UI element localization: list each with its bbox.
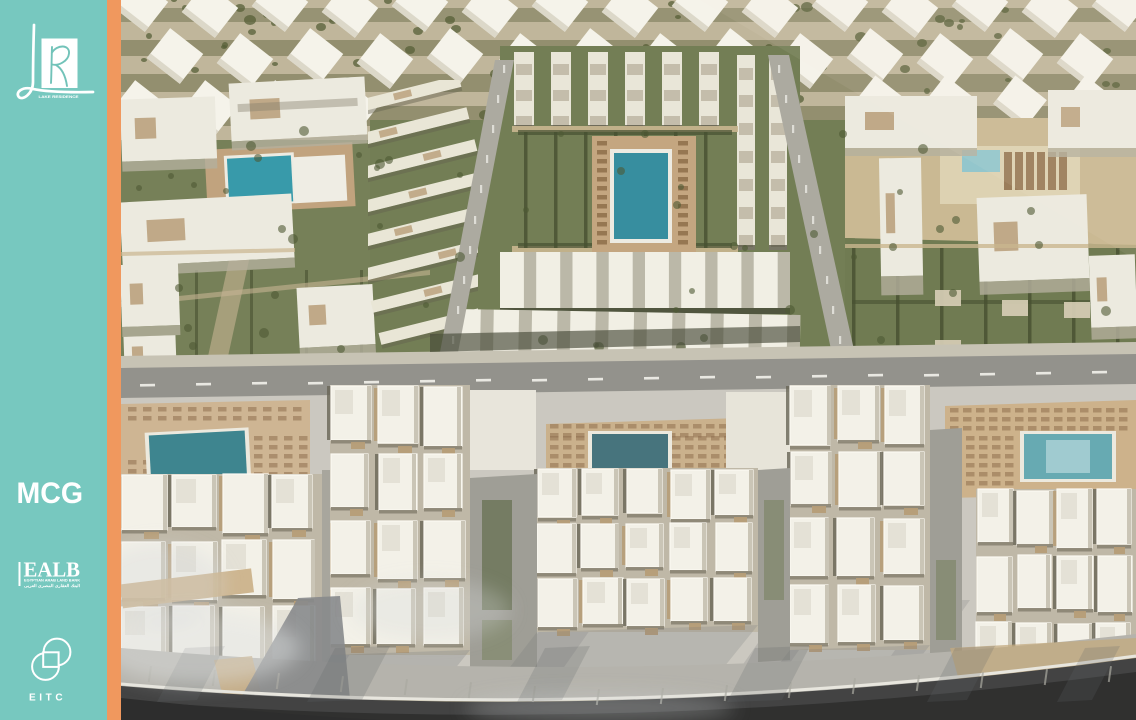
svg-text:LAKE RESIDENCE: LAKE RESIDENCE	[39, 95, 80, 99]
svg-text:MCG: MCG	[17, 477, 84, 510]
svg-text:EITC: EITC	[29, 693, 66, 704]
svg-text:EGYPTIAN ARAB LAND BANK: EGYPTIAN ARAB LAND BANK	[24, 579, 81, 583]
